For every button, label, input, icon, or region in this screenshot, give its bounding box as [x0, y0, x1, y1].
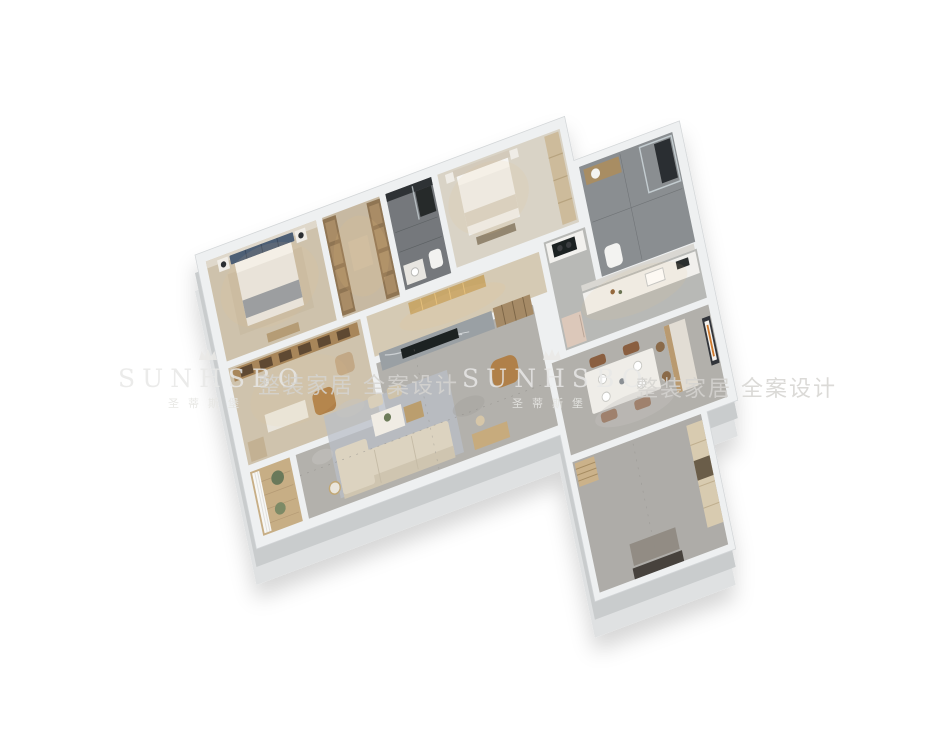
apartment-model: [188, 77, 774, 733]
isometric-floorplan: [0, 0, 950, 733]
floorplan-render-canvas: SUNHSBO 圣蒂斯堡 整装家居 全案设计 SUNHSBO 圣蒂斯堡 整装家居…: [0, 0, 950, 733]
